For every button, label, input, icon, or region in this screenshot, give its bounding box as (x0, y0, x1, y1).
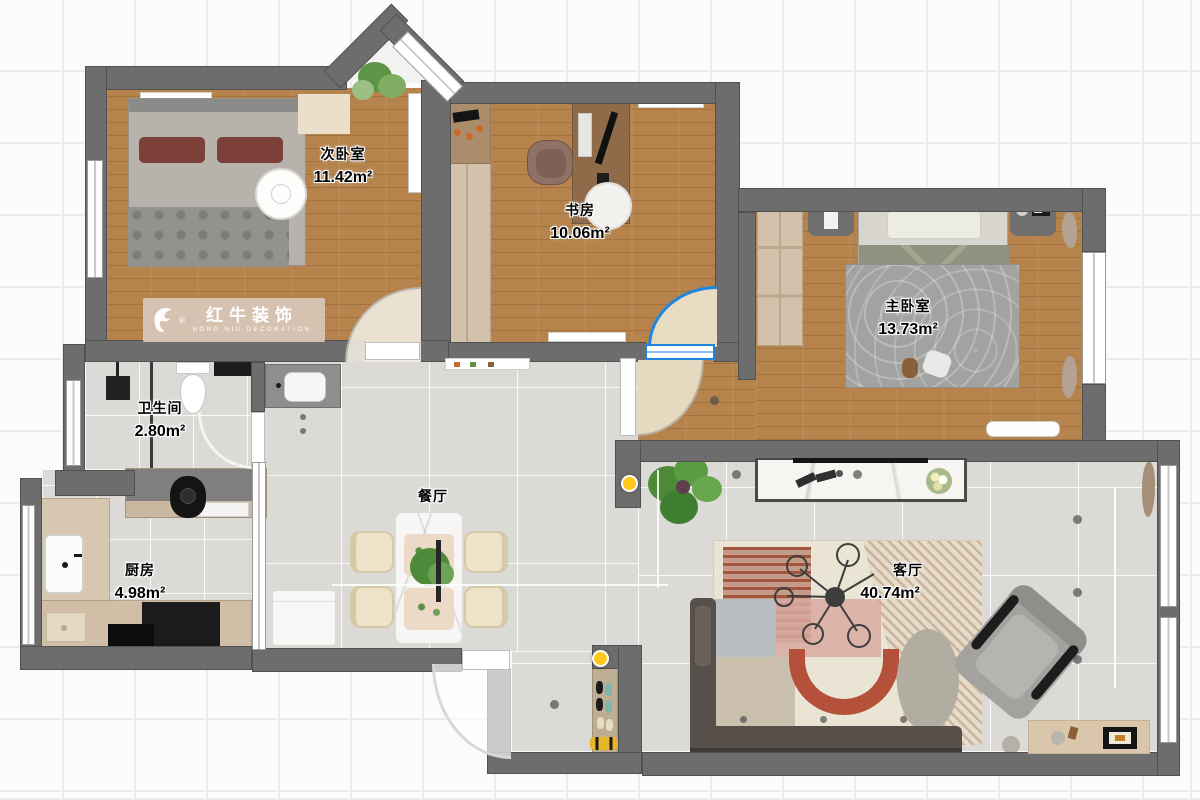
kitchen-appliance-small (108, 624, 154, 648)
hongniu-bull-logo-icon (149, 305, 179, 335)
wall-right-study (715, 82, 740, 358)
sofa-leg (900, 716, 907, 723)
ceiling-light-yellow (592, 650, 609, 667)
bay-plant (352, 80, 374, 100)
room-label-living: 客厅 40.74m² (820, 560, 960, 603)
study-shelf-bottom (548, 332, 626, 342)
toilet (176, 362, 210, 374)
room-label-kitchen: 厨房 4.98m² (80, 560, 200, 603)
wall-top-secondary-bedroom (85, 66, 347, 90)
wall-right-master-b (1082, 384, 1106, 442)
sofa-leg (820, 716, 827, 723)
bathroom-cabinet (214, 362, 252, 376)
wall-top-study (448, 82, 724, 104)
light-strip (657, 470, 659, 588)
door-entry (432, 664, 511, 759)
kitchen-sink (44, 534, 84, 594)
wall-entry-right (618, 645, 642, 753)
entry-shelf (445, 358, 530, 370)
remote-control (815, 470, 836, 483)
decor-figurine (1068, 726, 1079, 740)
room-label-master-bedroom: 主卧室 13.73m² (848, 296, 968, 339)
window-master-bedroom (1082, 252, 1106, 384)
door-stopper (710, 396, 719, 405)
vent-dot (300, 428, 306, 434)
master-wardrobe (757, 196, 803, 346)
rug-toy-dog (902, 358, 918, 378)
room-name: 卫生间 (100, 398, 220, 418)
bed-blanket-patterned (129, 207, 289, 267)
bed-pillow (217, 137, 283, 163)
car-doormat (590, 737, 618, 750)
shoes-teal (605, 683, 612, 696)
wall-bottom-kitchen (20, 646, 252, 670)
dining-chair (464, 531, 508, 573)
window-living-2 (1160, 617, 1177, 743)
room-name: 厨房 (80, 560, 200, 580)
downlight (1073, 515, 1082, 524)
threshold-hallway (620, 358, 636, 436)
watermark: ® 红牛装饰 HONG NIU DECORATION (143, 298, 325, 342)
threshold-bathroom (251, 412, 265, 468)
room-name: 客厅 (820, 560, 960, 580)
rug-red-arc (789, 649, 899, 715)
window-bathroom (66, 380, 81, 466)
wall-between-bedroom-study (421, 80, 451, 362)
room-area: 11.42m² (283, 169, 403, 187)
rug-gray-block (715, 599, 776, 657)
dining-centerpiece-plant (428, 562, 454, 586)
room-label-study: 书房 10.06m² (520, 200, 640, 243)
washing-machine (272, 590, 336, 646)
washbasin-counter (265, 364, 341, 408)
downlight (853, 470, 862, 479)
wall-bottom-dining (252, 648, 462, 672)
wall-bottom-bedrooms-a (85, 340, 365, 362)
pendant-light-bar (436, 540, 441, 602)
curtain (1062, 212, 1077, 248)
placemat (404, 588, 454, 630)
room-name: 餐厅 (395, 486, 471, 506)
threshold-secondary-bedroom (365, 342, 420, 360)
wall-bottom-living (642, 752, 1180, 776)
bed-pillow (887, 211, 981, 239)
wall-living-topleft-stub (615, 440, 641, 508)
tv-console (755, 458, 967, 502)
room-name: 主卧室 (848, 296, 968, 316)
bay-plant (378, 74, 406, 98)
vent-dot (300, 414, 306, 420)
downlight (550, 700, 559, 709)
room-name: 书房 (520, 200, 640, 220)
dining-chair (350, 586, 394, 628)
wall-left-master-bedroom (738, 212, 756, 380)
keyboard (578, 113, 592, 157)
wall-top-master-bedroom (738, 188, 1106, 212)
shoes-black (596, 681, 603, 694)
living-plant-pot (676, 480, 690, 494)
shoes-teal (605, 700, 612, 713)
room-label-bathroom: 卫生间 2.80m² (100, 398, 220, 441)
bed-pillow (139, 137, 205, 163)
mirror-strip (408, 93, 422, 193)
light-strip (332, 584, 668, 586)
sliding-door-kitchen (252, 462, 266, 650)
master-bench (986, 421, 1060, 437)
window-living-1 (1160, 465, 1177, 607)
slippers (606, 719, 613, 731)
ceiling-light-yellow (621, 475, 638, 492)
watermark-brand-cn: 红牛装饰 (185, 307, 319, 324)
downlight (1073, 588, 1082, 597)
window-secondary-bedroom (87, 160, 103, 278)
room-label-secondary-bedroom: 次卧室 11.42m² (283, 144, 403, 187)
slippers (597, 717, 604, 729)
threshold-study-door (645, 344, 715, 360)
coffee-machine (170, 476, 206, 518)
console-top-bar (793, 458, 928, 463)
room-area: 13.73m² (848, 321, 968, 339)
shoes-black (596, 698, 603, 711)
room-area: 10.06m² (520, 225, 640, 243)
room-area: 4.98m² (80, 585, 200, 603)
decor-bowl (1051, 731, 1065, 745)
room-area: 40.74m² (820, 585, 960, 603)
living-plant (660, 490, 698, 524)
remote-control (795, 472, 817, 488)
shower-head (106, 376, 130, 400)
washbasin-sink (284, 372, 326, 402)
sofa-main (690, 726, 962, 754)
desk-chair (527, 140, 573, 185)
wall-bottom-bathroom (55, 470, 135, 496)
laptop (452, 109, 479, 123)
watermark-brand-en: HONG NIU DECORATION (185, 327, 319, 333)
room-label-dining: 餐厅 (395, 486, 471, 506)
light-strip (1114, 488, 1116, 688)
room-area: 2.80m² (100, 423, 220, 441)
downlight (1073, 655, 1082, 664)
dining-chair (350, 531, 394, 573)
flower-vase (926, 468, 952, 494)
threshold-entry (462, 650, 510, 670)
room-name: 次卧室 (283, 144, 403, 164)
window-kitchen (22, 505, 35, 645)
downlight (732, 470, 741, 479)
bedside-mat (298, 94, 350, 134)
living-plant (692, 476, 722, 502)
dining-chair (464, 586, 508, 628)
wall-right-master-a (1082, 188, 1106, 252)
sideboard (1028, 720, 1150, 754)
sofa-leg (740, 716, 747, 723)
wall-bathroom-divider (251, 362, 265, 412)
cutting-board (46, 612, 86, 642)
bed-headboard (129, 99, 305, 112)
floor-plan-canvas: ® 红牛装饰 HONG NIU DECORATION (0, 0, 1200, 800)
monitor (595, 111, 618, 165)
